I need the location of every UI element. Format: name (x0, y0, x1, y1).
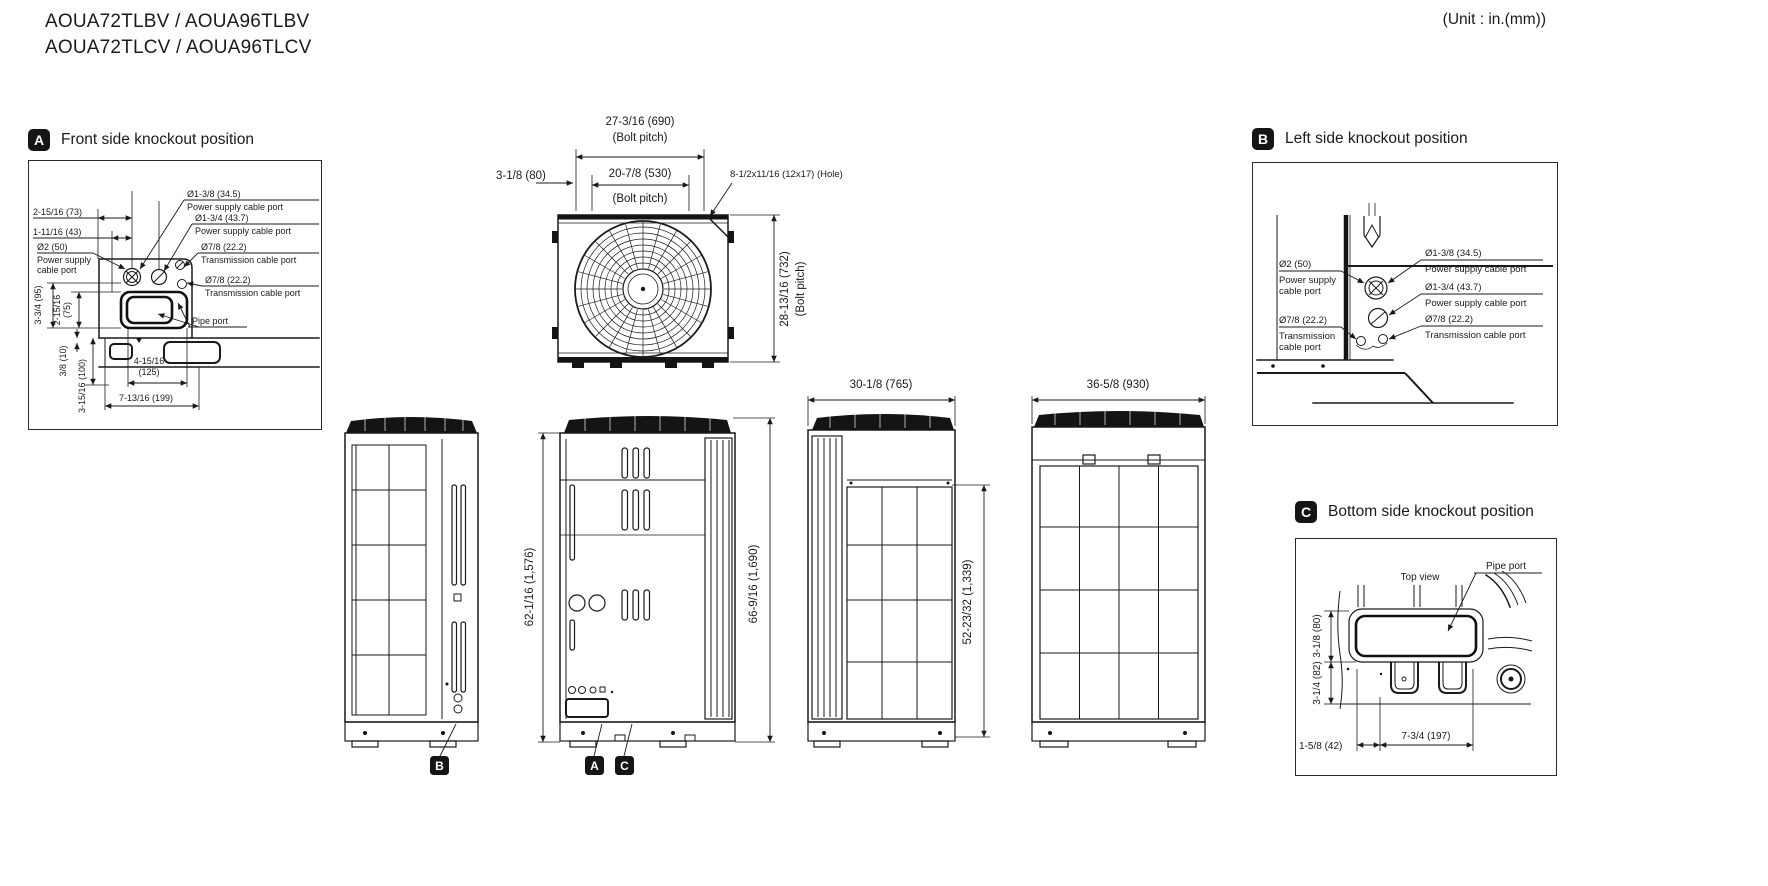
hole-label: 8-1/2x11/16 (12x17) (Hole) (730, 169, 843, 180)
dim-22-2: Ø7/8 (22.2) (205, 275, 251, 285)
section-b-title-label: Left side knockout position (1285, 130, 1468, 148)
section-a-title-label: Front side knockout position (61, 131, 254, 149)
top-view-label: Top view (1401, 572, 1441, 583)
transmission-port-label: Transmission cable port (205, 288, 301, 298)
dim-1339: 52-23/32 (1,339) (962, 559, 974, 644)
dim-22-2: Ø7/8 (22.2) (1425, 314, 1473, 325)
dim-125a: 4-15/16 (134, 356, 165, 366)
dim-95: 3-3/4 (95) (33, 285, 43, 324)
dim-125b: (125) (138, 367, 159, 377)
dim-1690: 66-9/16 (1,690) (748, 545, 760, 624)
dim-930: 36-5/8 (930) (1087, 379, 1150, 391)
dim-50: Ø2 (50) (1279, 259, 1311, 270)
vent-slots (622, 448, 650, 620)
bolt-pitch-label: (Bolt pitch) (795, 261, 807, 316)
dim-197: 7-3/4 (197) (1402, 731, 1451, 742)
dim-42: 1-5/8 (42) (1299, 741, 1342, 752)
view-badges: B A C (430, 756, 634, 775)
section-a-title: A Front side knockout position (28, 129, 254, 151)
power-port-label: Power supply cable port (195, 226, 292, 236)
dim-22-2: Ø7/8 (22.2) (201, 242, 247, 252)
dim-73: 2-15/16 (73) (33, 207, 82, 217)
base-plate-outline (1338, 571, 1532, 709)
bolt-pitch-label: (Bolt pitch) (613, 193, 668, 205)
transmission-port-label: Transmission cable port (1425, 330, 1526, 341)
elevation-views: 62-1/16 (1,576) 66-9/16 (1,690) 30-1/8 (… (330, 372, 1240, 792)
transmission-port-label: Transmission cable port (201, 255, 297, 265)
view-right-side (808, 413, 955, 747)
dim-80: 3-1/8 (80) (496, 170, 546, 182)
dim-199: 7-13/16 (199) (119, 393, 173, 403)
power-port-line2: cable port (1279, 286, 1321, 297)
extension-lines (538, 396, 1205, 742)
section-c-title-label: Bottom side knockout position (1328, 503, 1534, 521)
power-port-line2: cable port (37, 265, 77, 275)
front-knockout-drawing: 2-15/16 (73) 1-11/16 (43) Ø2 (50) Power … (29, 161, 321, 429)
model-line1: AOUA72TLBV / AOUA96TLBV (45, 9, 311, 35)
transmission-port-line2: cable port (1279, 342, 1321, 353)
section-a-badge: A (28, 129, 50, 151)
power-port-label: Power supply cable port (1425, 298, 1527, 309)
dim-43-7: Ø1-3/4 (43.7) (1425, 282, 1482, 293)
dim-82: 3-1/4 (82) (1312, 661, 1323, 704)
dim-100: 3-15/16 (100) (77, 359, 87, 413)
fan-top-view: 27-3/16 (690) (Bolt pitch) 3-1/8 (80) 20… (480, 105, 848, 375)
section-c-badge: C (1295, 501, 1317, 523)
pipe-port-inner (127, 297, 172, 323)
dimension-arrows (440, 400, 1205, 756)
dim-43: 1-11/16 (43) (33, 227, 81, 237)
section-a-panel: 2-15/16 (73) 1-11/16 (43) Ø2 (50) Power … (28, 160, 322, 430)
power-port-line1: Power supply (1279, 275, 1336, 286)
extension-lines (47, 191, 199, 410)
extension-lines (576, 149, 780, 362)
view-rear (1032, 410, 1205, 747)
power-port-label: Power supply cable port (187, 202, 284, 212)
dim-765: 30-1/8 (765) (850, 379, 913, 391)
dim-75a: 2-15/16 (52, 295, 62, 326)
dim-732: 28-13/16 (732) (779, 251, 791, 327)
power-port-label: Power supply cable port (1425, 264, 1527, 275)
left-knockout-labels: Ø2 (50) Power supply cable port Ø7/8 (22… (1279, 248, 1527, 353)
dim-34-5: Ø1-3/8 (34.5) (1425, 248, 1482, 259)
extension-lines (1324, 611, 1473, 751)
top-view-labels: 27-3/16 (690) (Bolt pitch) 3-1/8 (80) 20… (496, 116, 843, 327)
section-b-title: B Left side knockout position (1252, 128, 1468, 150)
top-view-drawing: 27-3/16 (690) (Bolt pitch) 3-1/8 (80) 20… (480, 105, 848, 375)
fan-grille (575, 221, 711, 357)
model-line2: AOUA72TLCV / AOUA96TLCV (45, 35, 311, 61)
dim-80: 3-1/8 (80) (1312, 614, 1323, 657)
dim-50: Ø2 (50) (37, 242, 68, 252)
elevation-views-svg: 62-1/16 (1,576) 66-9/16 (1,690) 30-1/8 (… (330, 372, 1240, 792)
dimension-arrows (1331, 573, 1542, 745)
pipe-port-label: Pipe port (1486, 561, 1526, 572)
bottom-knockout-drawing: Top view Pipe port 3-1/8 (80) 3-1/4 (82)… (1296, 539, 1556, 775)
power-port-line1: Power supply (37, 255, 92, 265)
view-left-side (345, 416, 478, 747)
section-c-panel: Top view Pipe port 3-1/8 (80) 3-1/4 (82)… (1295, 538, 1557, 776)
pipe-port-inner (1356, 616, 1476, 656)
dim-10: 3/8 (10) (58, 345, 68, 376)
dim-1576: 62-1/16 (1,576) (524, 548, 536, 627)
dim-530: 20-7/8 (530) (609, 168, 672, 180)
section-c-title: C Bottom side knockout position (1295, 501, 1534, 523)
badge-c-letter: C (620, 759, 629, 773)
dim-75b: (75) (62, 302, 72, 318)
bolt-pitch-label: (Bolt pitch) (613, 132, 668, 144)
unit-note: (Unit : in.(mm)) (1443, 11, 1546, 29)
badge-b-letter: B (435, 759, 444, 773)
dim-690: 27-3/16 (690) (605, 116, 674, 128)
transmission-port-line1: Transmission (1279, 331, 1335, 342)
pipe-port-label: Pipe port (192, 316, 229, 326)
model-names: AOUA72TLBV / AOUA96TLBV AOUA72TLCV / AOU… (45, 9, 311, 61)
spec-sheet-page: AOUA72TLBV / AOUA96TLBV AOUA72TLCV / AOU… (0, 0, 1768, 886)
dim-34-5: Ø1-3/8 (34.5) (187, 189, 241, 199)
view-front (560, 415, 735, 747)
left-knockout-drawing: Ø2 (50) Power supply cable port Ø7/8 (22… (1253, 163, 1557, 425)
dim-22-2: Ø7/8 (22.2) (1279, 315, 1327, 326)
section-b-panel: Ø2 (50) Power supply cable port Ø7/8 (22… (1252, 162, 1558, 426)
dim-43-7: Ø1-3/4 (43.7) (195, 213, 249, 223)
front-knockout-labels: 2-15/16 (73) 1-11/16 (43) Ø2 (50) Power … (33, 189, 301, 413)
badge-a-letter: A (590, 759, 599, 773)
section-b-badge: B (1252, 128, 1274, 150)
